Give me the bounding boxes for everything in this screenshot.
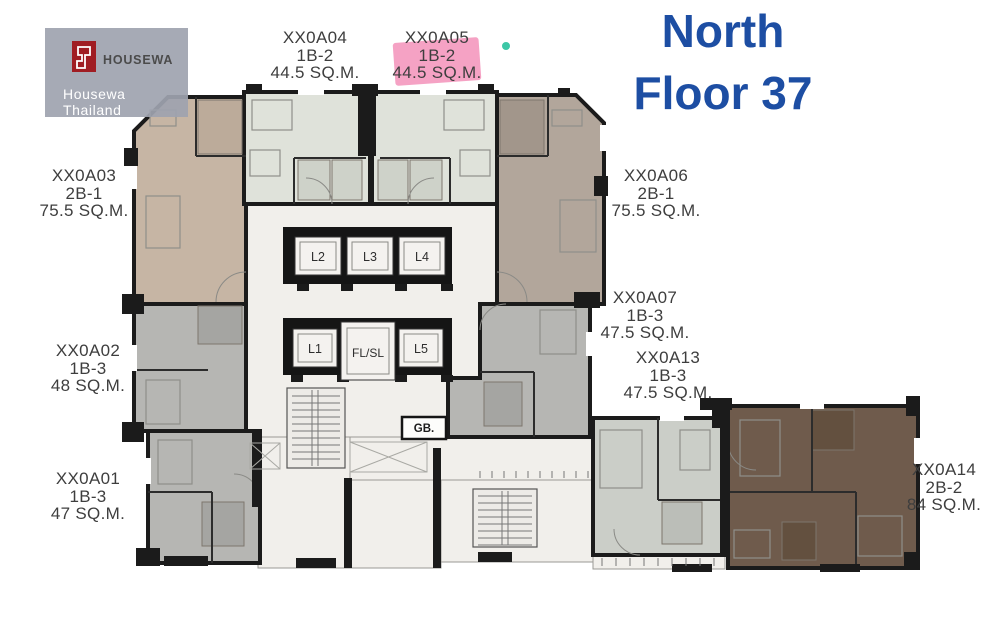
unit-size: 75.5 SQ.M. [576,202,736,220]
unit-size: 47 SQ.M. [8,505,168,523]
elevator-label-l2: L2 [311,250,325,264]
unit-label-xx0a13: XX0A13 1B-3 47.5 SQ.M. [588,349,748,402]
title-floor: Floor 37 [598,68,848,118]
garbage-label: GB. [414,423,434,435]
unit-type: 1B-3 [8,360,168,378]
unit-label-xx0a02: XX0A02 1B-3 48 SQ.M. [8,342,168,395]
floorplan-page: L2 L3 L4 L1 FL/SL L5 GB [0,0,998,620]
unit-id: XX0A13 [588,349,748,367]
unit-size: 47.5 SQ.M. [565,324,725,342]
unit-type: 1B-3 [588,367,748,385]
unit-type: 1B-3 [8,488,168,506]
elevator-label-l3: L3 [363,250,377,264]
unit-type: 2B-1 [4,185,164,203]
unit-label-xx0a14: XX0A14 2B-2 84 SQ.M. [864,461,998,514]
unit-size: 75.5 SQ.M. [4,202,164,220]
unit-type: 1B-2 [357,47,517,65]
garbage-room: GB. [402,417,446,439]
unit-id: XX0A01 [8,470,168,488]
unit-id: XX0A03 [4,167,164,185]
elevator-bank-top: L2 L3 L4 [283,227,452,284]
unit-type: 1B-3 [565,307,725,325]
watermark-text: Housewa Thailand [63,86,188,118]
unit-type: 2B-2 [864,479,998,497]
unit-label-xx0a01: XX0A01 1B-3 47 SQ.M. [8,470,168,523]
unit-id: XX0A02 [8,342,168,360]
unit-size: 84 SQ.M. [864,496,998,514]
unit-id: XX0A06 [576,167,736,185]
unit-label-xx0a03: XX0A03 2B-1 75.5 SQ.M. [4,167,164,220]
unit-id: XX0A14 [864,461,998,479]
unit-id: XX0A07 [565,289,725,307]
elevator-label-l4: L4 [415,250,429,264]
unit-size: 48 SQ.M. [8,377,168,395]
unit-size: 44.5 SQ.M. [357,64,517,82]
elevator-bank-bottom: L1 FL/SL L5 [283,318,452,380]
page-title: North Floor 37 [598,6,848,118]
title-direction: North [598,6,848,56]
unit-type: 2B-1 [576,185,736,203]
elevator-label-flsl: FL/SL [352,346,384,360]
staircase-1 [287,388,345,468]
logo-brand-text: HOUSEWA [103,53,173,67]
elevator-label-l5: L5 [414,342,428,356]
unit-size: 47.5 SQ.M. [588,384,748,402]
unit-id: XX0A05 [357,29,517,47]
unit-label-xx0a07: XX0A07 1B-3 47.5 SQ.M. [565,289,725,342]
unit-label-xx0a06: XX0A06 2B-1 75.5 SQ.M. [576,167,736,220]
housewa-logo-icon [72,41,96,72]
elevator-label-l1: L1 [308,342,322,356]
staircase-2 [473,489,537,547]
unit-label-xx0a05: XX0A05 1B-2 44.5 SQ.M. [357,29,517,82]
logo-watermark-box: HOUSEWA Housewa Thailand [45,28,188,117]
